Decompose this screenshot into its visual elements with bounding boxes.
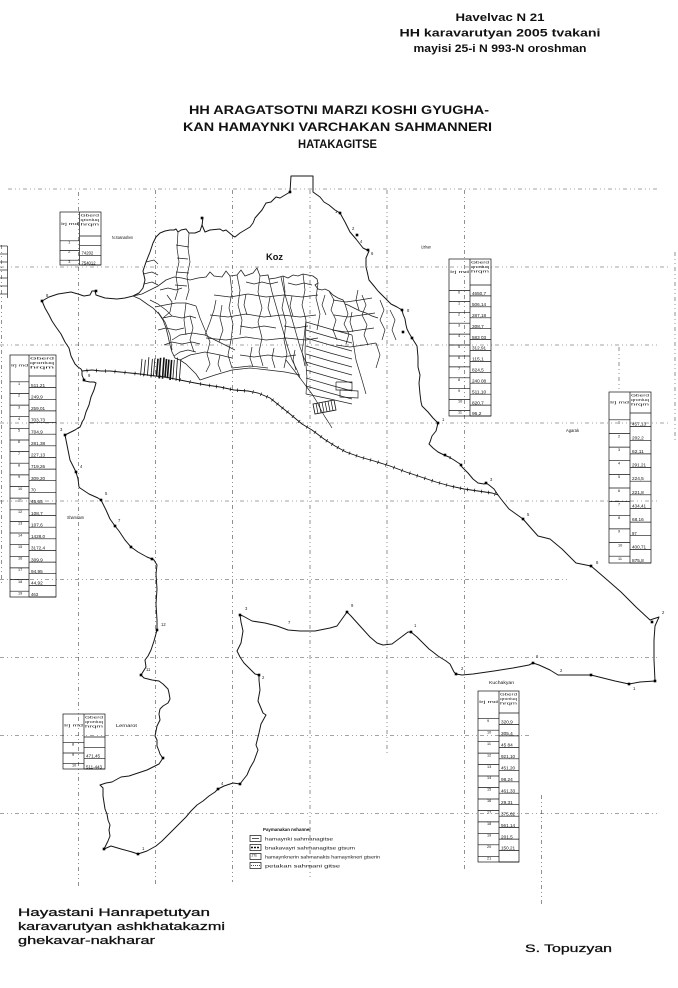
svg-text:6: 6 — [458, 356, 460, 360]
svg-text:16: 16 — [487, 799, 491, 803]
svg-text:9: 9 — [458, 389, 460, 393]
svg-text:44,92: 44,92 — [31, 581, 44, 586]
svg-text:875,8: 875,8 — [632, 558, 645, 563]
svg-text:7: 7 — [458, 367, 460, 371]
svg-text:qronluq: qronluq — [500, 697, 517, 701]
svg-text:457,13: 457,13 — [632, 422, 647, 427]
svg-text:703,73: 703,73 — [31, 418, 46, 423]
svg-text:HH karavarutyan 2005 tvakani: HH karavarutyan 2005 tvakani — [400, 28, 601, 40]
svg-text:10: 10 — [458, 400, 462, 404]
svg-text:4: 4 — [18, 417, 20, 421]
svg-text:9: 9 — [618, 530, 620, 534]
svg-text:Shamiram: Shamiram — [67, 515, 84, 520]
svg-text:820,7: 820,7 — [472, 400, 485, 405]
svg-text:1: 1 — [618, 421, 620, 425]
svg-text:227,13: 227,13 — [31, 453, 46, 458]
svg-text:511,10: 511,10 — [472, 389, 487, 394]
svg-text:108,7: 108,7 — [31, 511, 44, 516]
svg-text:400,71: 400,71 — [632, 544, 647, 549]
svg-text:471,45: 471,45 — [86, 754, 101, 759]
svg-text:Lernarot: Lernarot — [116, 723, 138, 728]
svg-text:Uzhan: Uzhan — [421, 245, 431, 250]
svg-text:4650,7: 4650,7 — [472, 291, 487, 296]
svg-text:1: 1 — [68, 241, 70, 245]
svg-text:11: 11 — [487, 742, 491, 746]
svg-text:2: 2 — [618, 434, 620, 438]
svg-text:754012: 754012 — [82, 260, 97, 265]
svg-text:9: 9 — [18, 475, 20, 479]
svg-text:1: 1 — [18, 382, 20, 386]
svg-text:221,8: 221,8 — [632, 490, 645, 495]
svg-text:Gberd: Gberd — [500, 693, 517, 697]
svg-text:hrqm: hrqm — [30, 366, 54, 370]
svg-text:6: 6 — [18, 440, 20, 444]
svg-text:461,33: 461,33 — [501, 788, 516, 793]
svg-text:2Ts: 2Ts — [252, 854, 258, 858]
svg-text:S. Topuzyan: S. Topuzyan — [525, 943, 612, 955]
svg-text:Gberd: Gberd — [81, 214, 100, 218]
svg-text:305,4: 305,4 — [501, 731, 514, 736]
svg-text:115,1: 115,1 — [472, 357, 485, 362]
svg-text:Irj md: Irj md — [61, 222, 79, 226]
svg-text:14: 14 — [18, 533, 22, 537]
svg-text:506,14: 506,14 — [472, 302, 487, 307]
svg-text:Gberd: Gberd — [471, 261, 489, 265]
svg-text:Hayastani Hanrapetutyan: Hayastani Hanrapetutyan — [18, 907, 210, 919]
svg-text:7: 7 — [618, 503, 620, 507]
svg-text:3: 3 — [68, 260, 70, 264]
svg-text:291,21: 291,21 — [632, 463, 647, 468]
svg-text:45 84: 45 84 — [501, 743, 514, 748]
svg-text:8: 8 — [458, 378, 460, 382]
svg-text:HATAKAGITSE: HATAKAGITSE — [298, 139, 377, 151]
svg-text:5: 5 — [18, 429, 20, 433]
svg-text:240 08: 240 08 — [472, 379, 487, 384]
svg-text:19: 19 — [18, 591, 22, 595]
svg-text:259,01: 259,01 — [31, 406, 46, 411]
svg-text:Irj md: Irj md — [11, 364, 28, 368]
svg-text:1428,0: 1428,0 — [31, 534, 46, 539]
svg-text:704,9: 704,9 — [31, 429, 44, 434]
svg-text:1: 1 — [458, 301, 460, 305]
svg-text:Gberd: Gberd — [30, 357, 54, 361]
svg-text:Havelvac N 21: Havelvac N 21 — [456, 12, 545, 24]
svg-text:Irj md: Irj md — [64, 724, 83, 728]
svg-text:karavarutyan ashkhatakazmi: karavarutyan ashkhatakazmi — [18, 921, 225, 933]
svg-text:511-443: 511-443 — [86, 764, 103, 769]
svg-text:4: 4 — [618, 462, 620, 466]
svg-text:hamaynki sahmanagitse: hamaynki sahmanagitse — [265, 837, 334, 842]
svg-text:HH ARAGATSOTNI MARZI KOSHI GYU: HH ARAGATSOTNI MARZI KOSHI GYUGHA- — [189, 105, 489, 117]
svg-text:107,6: 107,6 — [31, 522, 44, 527]
svg-text:hrqm: hrqm — [500, 702, 517, 706]
svg-text:Gberd: Gberd — [85, 716, 103, 720]
svg-text:18: 18 — [487, 822, 491, 826]
svg-text:2: 2 — [458, 312, 460, 316]
svg-text:309,20: 309,20 — [31, 476, 46, 481]
svg-text:Gberd: Gberd — [631, 394, 649, 398]
svg-text:320,9: 320,9 — [501, 720, 514, 725]
svg-text:21: 21 — [487, 857, 491, 861]
svg-text:3: 3 — [618, 448, 620, 452]
svg-text:11: 11 — [18, 498, 22, 502]
svg-text:202,2: 202,2 — [632, 435, 645, 440]
svg-text:Paymanakan nshanner: Paymanakan nshanner — [263, 827, 311, 832]
svg-text:4: 4 — [458, 334, 460, 338]
svg-text:97: 97 — [632, 531, 637, 536]
svg-text:Irj md: Irj md — [479, 700, 498, 704]
svg-text:7: 7 — [18, 452, 20, 456]
svg-text:434,41: 434,41 — [632, 504, 647, 509]
svg-text:15: 15 — [487, 788, 491, 792]
svg-text:150,21: 150,21 — [501, 846, 516, 851]
svg-text:bnakavayri sahmanagitse gtsum: bnakavayri sahmanagitse gtsum — [265, 846, 355, 851]
svg-text:qronluq: qronluq — [471, 265, 489, 269]
svg-text:375,62: 375,62 — [501, 811, 516, 816]
svg-text:5: 5 — [458, 345, 460, 349]
svg-text:qronluq: qronluq — [631, 398, 649, 402]
svg-text:2: 2 — [68, 250, 70, 254]
svg-text:451,20: 451,20 — [501, 766, 516, 771]
svg-text:hrqm: hrqm — [471, 270, 489, 274]
svg-text:14: 14 — [487, 776, 491, 780]
svg-text:9: 9 — [487, 719, 489, 723]
svg-text:Irj md: Irj md — [450, 270, 469, 274]
svg-text:5: 5 — [618, 475, 620, 479]
svg-text:19: 19 — [487, 834, 491, 838]
svg-text:hrqm: hrqm — [81, 223, 100, 227]
svg-text:qronluq: qronluq — [81, 218, 100, 222]
svg-text:6: 6 — [618, 489, 620, 493]
svg-text:45,65: 45,65 — [31, 499, 44, 504]
svg-text:mayisi 25-i N 993-N oroshman: mayisi 25-i N 993-N oroshman — [414, 43, 587, 55]
svg-text:hamaynknerin sahmanakts hamayn: hamaynknerin sahmanakts hamaynkneri gtse… — [265, 855, 381, 860]
svg-text:petakan sahmani gitse: petakan sahmani gitse — [265, 864, 341, 869]
svg-text:12: 12 — [161, 622, 166, 627]
svg-text:qronluq: qronluq — [85, 720, 103, 724]
svg-text:8: 8 — [72, 742, 74, 746]
svg-text:hrqm: hrqm — [631, 403, 649, 407]
svg-text:Kuchakyan: Kuchakyan — [489, 680, 515, 685]
svg-text:Koz: Koz — [266, 252, 284, 262]
svg-text:13: 13 — [487, 765, 491, 769]
svg-text:29,31: 29,31 — [501, 800, 514, 805]
svg-text:68,16: 68,16 — [632, 517, 645, 522]
svg-text:20: 20 — [487, 845, 491, 849]
svg-text:62,11: 62,11 — [632, 449, 645, 454]
svg-text:9: 9 — [72, 753, 74, 757]
svg-text:0: 0 — [458, 291, 460, 295]
svg-text:312,91: 312,91 — [472, 346, 487, 351]
svg-text:583 03: 583 03 — [472, 335, 487, 340]
svg-text:8: 8 — [18, 464, 20, 468]
svg-text:561,14: 561,14 — [501, 823, 516, 828]
svg-text:17: 17 — [487, 811, 491, 815]
svg-text:11: 11 — [458, 411, 462, 415]
svg-text:10: 10 — [618, 543, 622, 547]
svg-text:281,38: 281,38 — [31, 441, 46, 446]
svg-text:98,24: 98,24 — [501, 777, 514, 782]
svg-text:10: 10 — [18, 487, 22, 491]
svg-text:8: 8 — [618, 516, 620, 520]
svg-text:3172,4: 3172,4 — [31, 546, 46, 551]
svg-text:224,5: 224,5 — [632, 476, 645, 481]
svg-text:hrqm: hrqm — [85, 725, 103, 729]
svg-text:463: 463 — [31, 592, 39, 597]
svg-text:ghekavar-nakharar: ghekavar-nakharar — [18, 935, 155, 947]
svg-text:10: 10 — [487, 730, 491, 734]
svg-text:96,2: 96,2 — [472, 411, 482, 416]
svg-text:11: 11 — [146, 667, 151, 672]
svg-text:11: 11 — [618, 557, 622, 561]
svg-text:2: 2 — [18, 394, 20, 398]
svg-text:921,10: 921,10 — [501, 754, 516, 759]
svg-text:16: 16 — [18, 557, 22, 561]
svg-text:511,21: 511,21 — [31, 383, 46, 388]
svg-text:17: 17 — [18, 568, 22, 572]
svg-text:249,9: 249,9 — [31, 394, 44, 399]
svg-text:94,95: 94,95 — [31, 569, 44, 574]
svg-text:12: 12 — [18, 510, 22, 514]
svg-text:N.Sasnashen: N.Sasnashen — [112, 235, 133, 240]
svg-text:309,9: 309,9 — [31, 557, 44, 562]
svg-text:qronluq: qronluq — [30, 361, 54, 365]
svg-text:201,5: 201,5 — [501, 834, 514, 839]
svg-text:KAN HAMAYNKI VARCHAKAN SAHMANN: KAN HAMAYNKI VARCHAKAN SAHMANNERI — [183, 122, 492, 134]
svg-text:3: 3 — [18, 405, 20, 409]
svg-text:3: 3 — [458, 323, 460, 327]
svg-text:Agarak: Agarak — [566, 428, 580, 433]
svg-text:12: 12 — [487, 753, 491, 757]
svg-text:74202: 74202 — [82, 251, 95, 256]
svg-text:Irj md: Irj md — [610, 401, 629, 405]
svg-text:70: 70 — [31, 488, 36, 493]
svg-text:824,5: 824,5 — [472, 368, 485, 373]
svg-text:18: 18 — [18, 580, 22, 584]
svg-text:13: 13 — [18, 522, 22, 526]
svg-text:287,18: 287,18 — [472, 313, 487, 318]
svg-text:308,7: 308,7 — [472, 324, 485, 329]
svg-text:719,26: 719,26 — [31, 464, 46, 469]
svg-text:10: 10 — [72, 764, 76, 768]
svg-text:15: 15 — [18, 545, 22, 549]
